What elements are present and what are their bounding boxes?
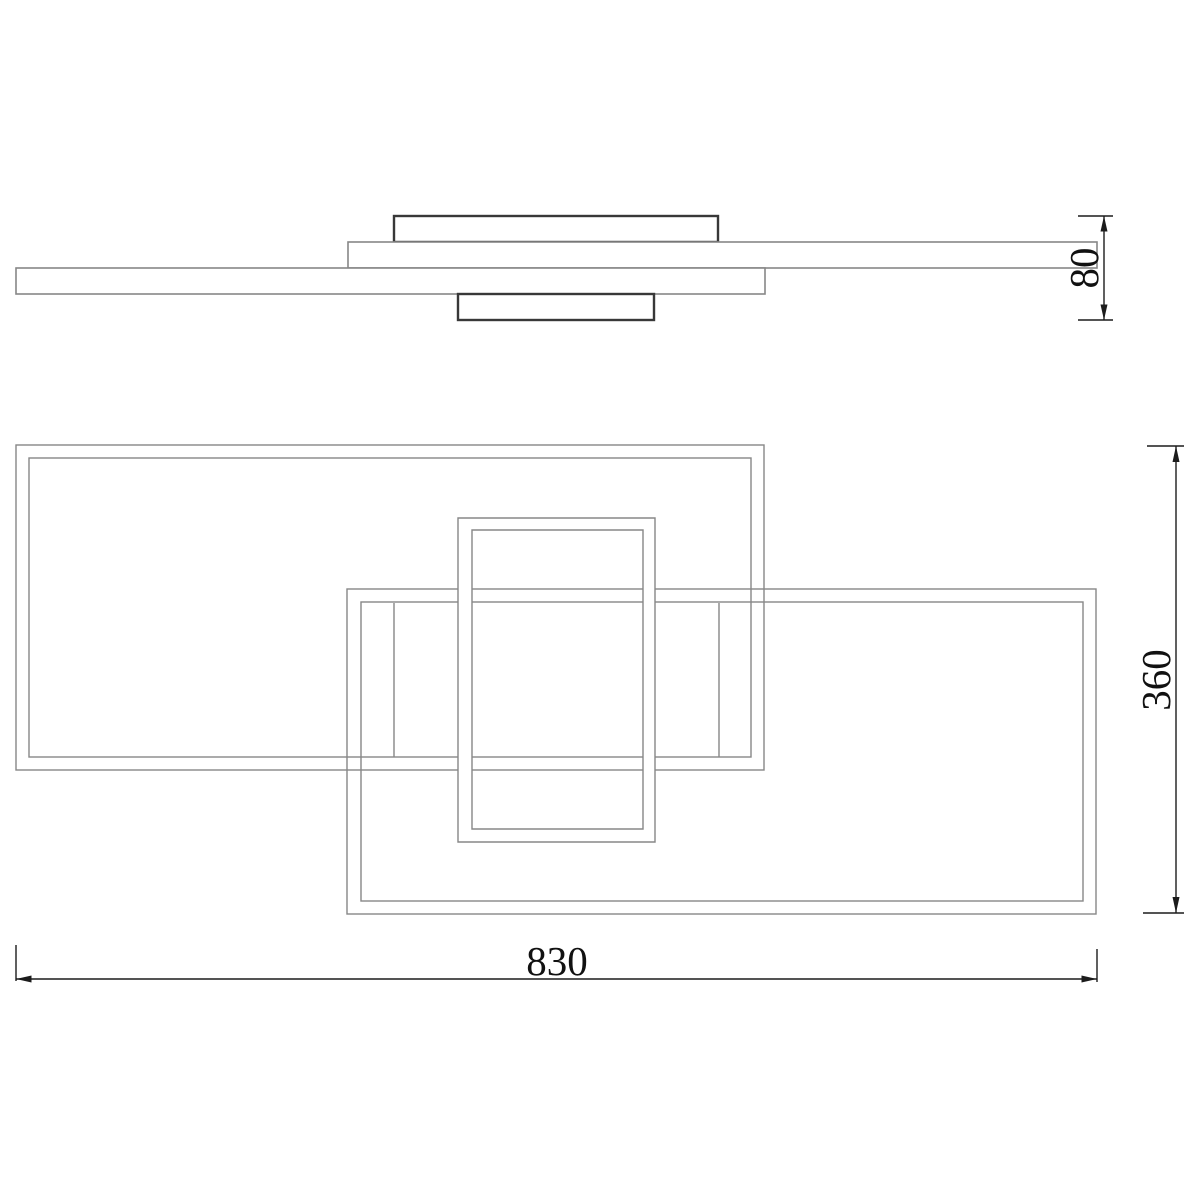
dim-80-label: 80	[1061, 248, 1107, 289]
dim-830-label: 830	[526, 938, 588, 984]
drawing-svg: 80 360 830	[0, 0, 1200, 1200]
dimension-depth-360: 360	[1133, 446, 1184, 913]
top-view	[16, 445, 1096, 914]
dim-830-arrow-right-icon	[1082, 976, 1098, 983]
front-right-frame-bar	[348, 242, 1097, 268]
dim-830-arrow-left-icon	[16, 976, 32, 983]
dimension-width-830: 830	[16, 938, 1097, 984]
front-center-frame-bar	[458, 294, 654, 320]
dim-360-label: 360	[1133, 649, 1179, 711]
front-canopy-bar	[394, 216, 718, 242]
dimension-height-80: 80	[1061, 216, 1113, 320]
dim-360-arrow-up-icon	[1173, 446, 1180, 462]
dim-360-arrow-down-icon	[1173, 897, 1180, 913]
technical-drawing-canvas: 80 360 830	[0, 0, 1200, 1200]
front-view	[16, 216, 1097, 320]
dim-80-arrow-down-icon	[1101, 305, 1108, 321]
front-left-frame-bar	[16, 268, 765, 294]
top-center-frame	[458, 518, 655, 842]
dim-80-arrow-up-icon	[1101, 216, 1108, 232]
